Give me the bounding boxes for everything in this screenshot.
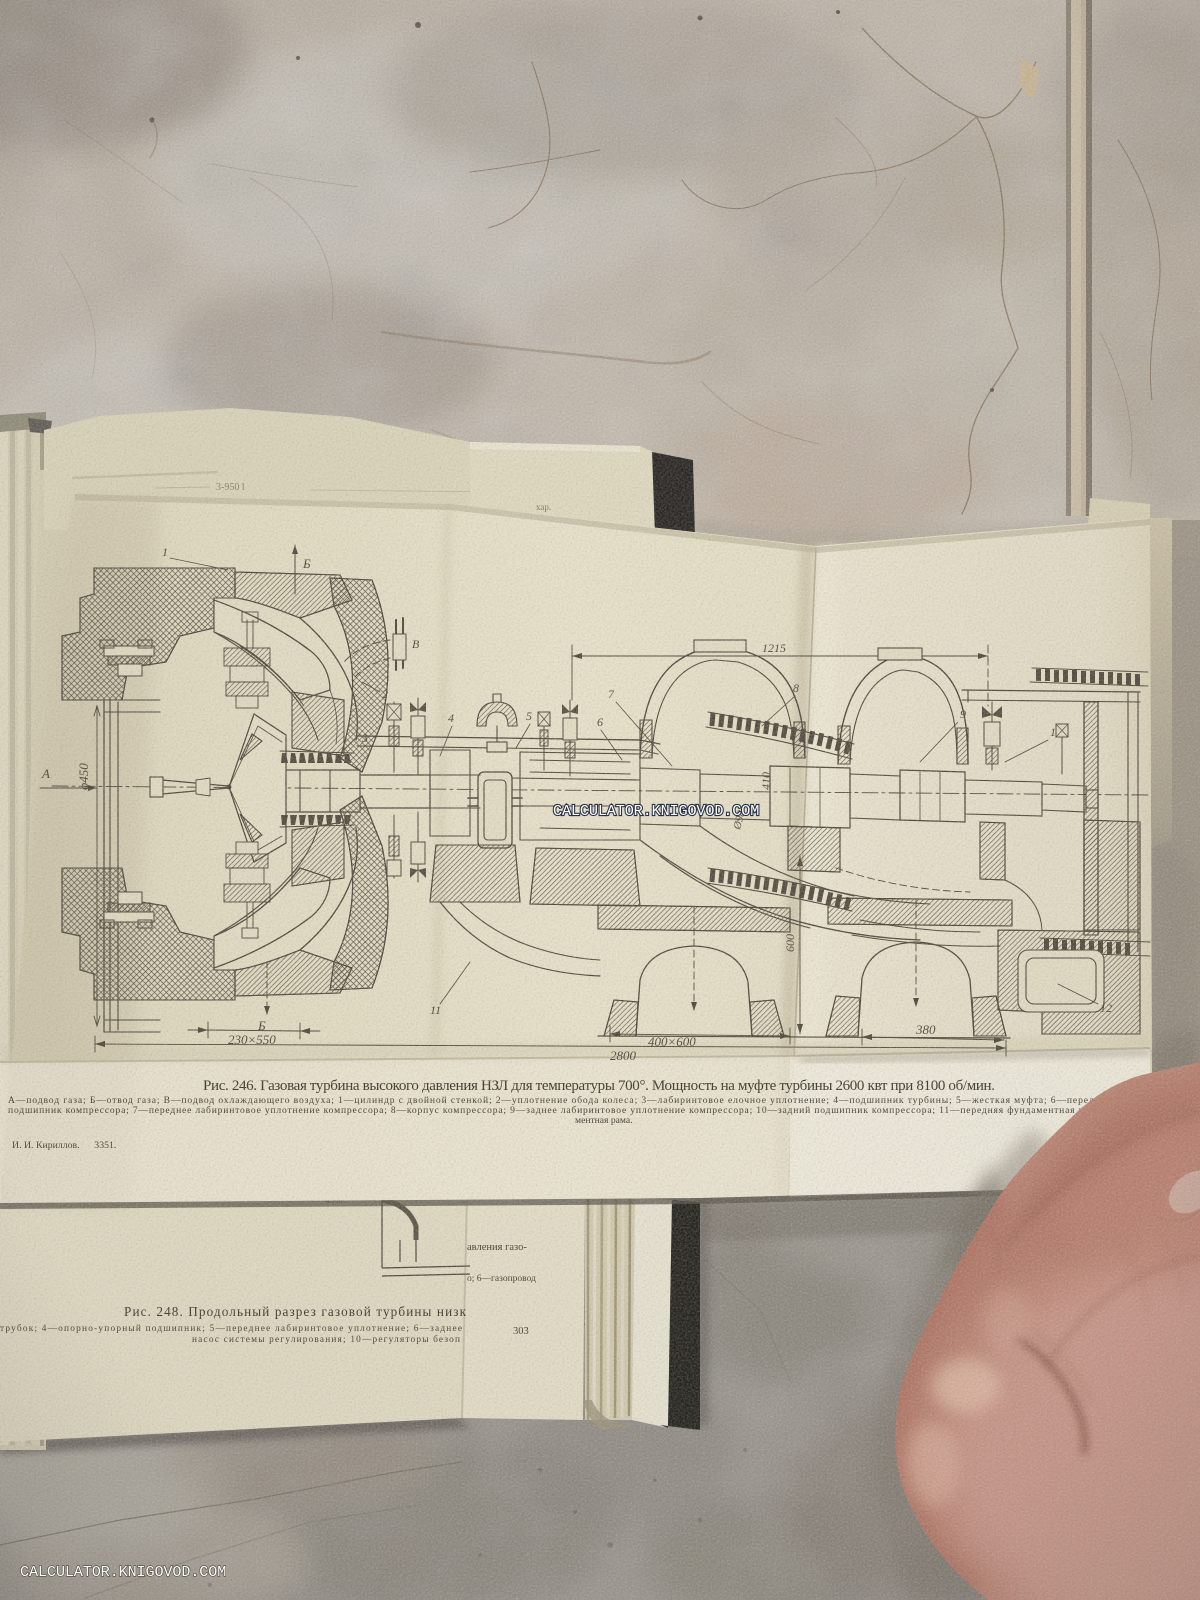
svg-text:CALCULATOR.KNIGOVOD.COM: CALCULATOR.KNIGOVOD.COM bbox=[20, 1563, 226, 1581]
svg-text:CALCULATOR.KNIGOVOD.COM: CALCULATOR.KNIGOVOD.COM bbox=[553, 802, 759, 820]
